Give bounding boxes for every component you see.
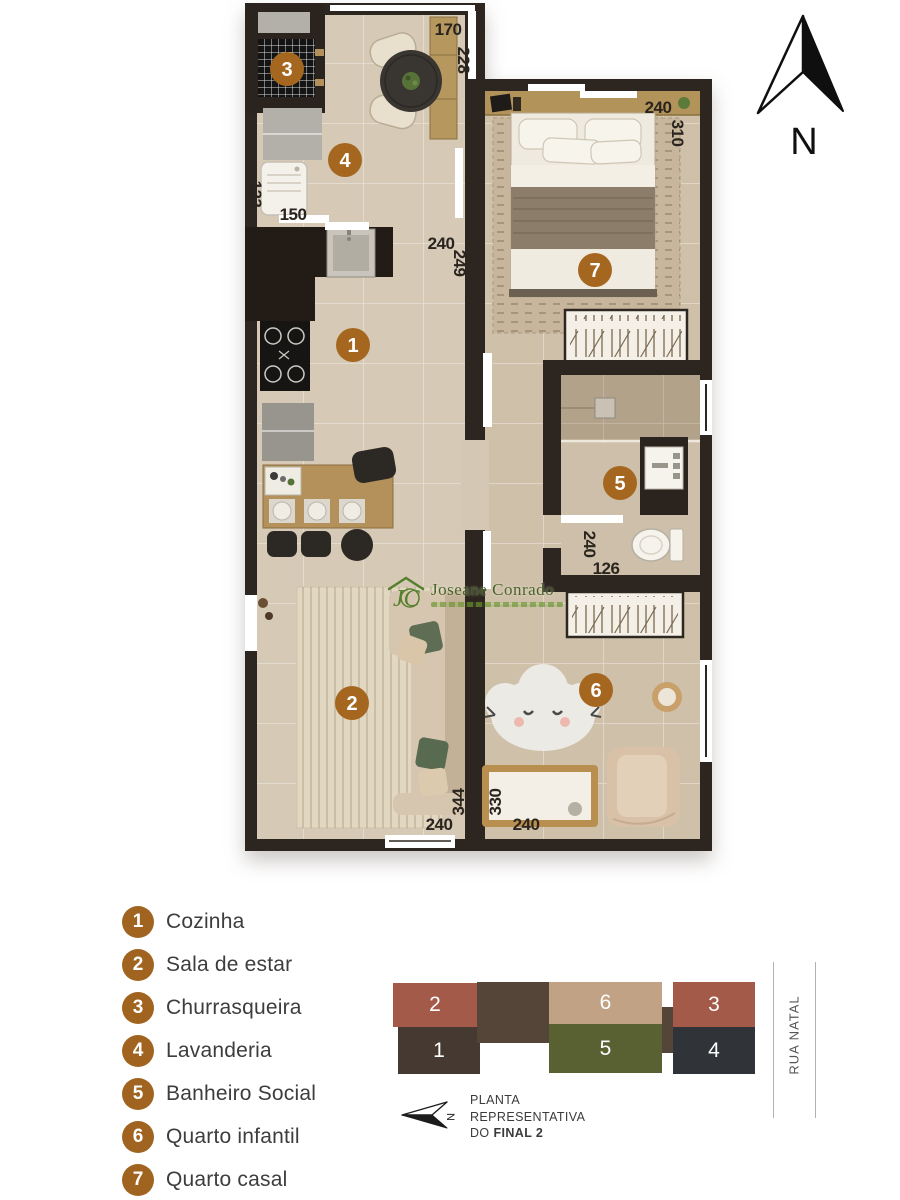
dim-laundry-width: 150 xyxy=(280,205,307,224)
kids-window xyxy=(700,660,712,762)
dim-kids-depth: 330 xyxy=(486,789,505,816)
watermark-logo-icon: JC xyxy=(386,575,426,611)
living-bottom-window xyxy=(385,835,455,848)
legend-item-quarto-casal: 7 Quarto casal xyxy=(122,1164,316,1196)
legend-item-lavanderia: 4 Lavanderia xyxy=(122,1035,316,1067)
shelf-books xyxy=(490,94,512,113)
badge-number: 1 xyxy=(347,335,358,357)
north-arrow: N xyxy=(748,4,858,164)
shelf-plant xyxy=(678,97,690,109)
keyplan-connector xyxy=(662,1007,673,1053)
north-arrow-left-half xyxy=(758,16,803,113)
legend-badge: 3 xyxy=(122,992,154,1024)
legend-item-sala: 2 Sala de estar xyxy=(122,949,316,981)
caption-line-2: REPRESENTATIVA xyxy=(470,1109,585,1126)
legend-item-banheiro: 5 Banheiro Social xyxy=(122,1078,316,1110)
room-badge-4: 4 xyxy=(328,143,362,177)
dim-laundry-depth: 123 xyxy=(246,181,265,208)
keyplan-unit-5: 5 xyxy=(549,1024,662,1073)
dim-living-depth: 344 xyxy=(449,788,468,816)
dim-kitchen-depth: 249 xyxy=(450,250,469,277)
shower-drain xyxy=(595,398,615,418)
side-plant-2 xyxy=(265,612,273,620)
room-badge-6: 6 xyxy=(579,673,613,707)
kids-stool xyxy=(652,682,682,712)
keyplan-north-arrow: N xyxy=(396,1098,460,1134)
bath-bottom-wall xyxy=(543,575,712,592)
bath-left-wall xyxy=(543,375,561,515)
table-plant xyxy=(402,72,420,90)
keyplan-unit-2: 2 xyxy=(393,983,477,1027)
hall-door-top xyxy=(483,353,492,427)
watermark-tagline xyxy=(431,602,563,607)
footboard xyxy=(509,289,657,297)
unit-number: 3 xyxy=(708,993,720,1017)
caption-line-1: PLANTA xyxy=(470,1092,585,1109)
keyplan-north-letter: N xyxy=(444,1113,456,1121)
caption-final-2: FINAL 2 xyxy=(493,1126,543,1140)
green-cushion-bottom xyxy=(415,737,450,772)
unit-number: 4 xyxy=(708,1039,720,1063)
kitchen-counter-side xyxy=(245,277,315,321)
shower xyxy=(561,375,700,441)
apartment-floor-plan: 170 228 240 310 123 150 240 249 240 126 … xyxy=(243,3,713,853)
watermark-name: Joseane Conrado xyxy=(431,580,563,600)
legend-label: Churrasqueira xyxy=(166,996,302,1020)
hallway-opening xyxy=(461,440,489,530)
unit-number: 5 xyxy=(600,1037,612,1061)
vanity xyxy=(640,437,688,515)
legend-badge: 4 xyxy=(122,1035,154,1067)
badge-number: 7 xyxy=(589,260,600,282)
legend-badge: 7 xyxy=(122,1164,154,1196)
badge-number: 3 xyxy=(281,59,292,81)
watermark: JC Joseane Conrado xyxy=(386,575,563,611)
legend-badge: 2 xyxy=(122,949,154,981)
legend-item-cozinha: 1 Cozinha xyxy=(122,906,316,938)
legend-label: Sala de estar xyxy=(166,953,292,977)
armchair xyxy=(607,747,680,827)
dim-bath-depth: 240 xyxy=(580,531,599,558)
building-key-plan: 2 1 6 5 3 4 N PLANTA REPRESENTATIVA DO F… xyxy=(390,960,835,1160)
balcony-edge xyxy=(330,5,475,11)
toilet xyxy=(632,529,683,561)
dim-casal-depth: 310 xyxy=(668,120,687,147)
dim-kids-width: 240 xyxy=(513,815,540,834)
street-line-right xyxy=(815,962,816,1118)
street-line-left xyxy=(773,962,774,1118)
dining-table xyxy=(380,50,442,112)
fridge xyxy=(262,403,314,461)
unit-number: 2 xyxy=(429,993,441,1017)
north-letter: N xyxy=(790,121,817,163)
keyplan-caption: PLANTA REPRESENTATIVA DO FINAL 2 xyxy=(470,1092,585,1142)
floorplan-sheet: N xyxy=(0,0,900,1200)
room-badge-2: 2 xyxy=(335,686,369,720)
legend-label: Cozinha xyxy=(166,910,244,934)
badge-number: 5 xyxy=(614,473,625,495)
legend-label: Quarto infantil xyxy=(166,1125,300,1149)
room-badge-3: 3 xyxy=(270,52,304,86)
unit-number: 6 xyxy=(600,991,612,1015)
closet-infantil xyxy=(567,592,683,637)
legend-badge: 1 xyxy=(122,906,154,938)
stove xyxy=(260,321,310,391)
counter-box xyxy=(258,12,310,33)
room-legend: 1 Cozinha 2 Sala de estar 3 Churrasqueir… xyxy=(122,906,316,1200)
keyplan-unit-4: 4 xyxy=(673,1027,755,1074)
dim-bath-width: 126 xyxy=(593,559,620,578)
street-name: RUA NATAL xyxy=(787,995,802,1074)
bath-door xyxy=(561,515,623,523)
legend-badge: 5 xyxy=(122,1078,154,1110)
living-left-door xyxy=(245,595,257,651)
caption-do: DO xyxy=(470,1126,490,1140)
badge-number: 6 xyxy=(590,680,601,702)
keyplan-unit-6: 6 xyxy=(549,982,662,1024)
svg-text:JC: JC xyxy=(393,586,421,611)
wardrobe-casal xyxy=(565,310,687,362)
dim-dining-depth: 228 xyxy=(454,47,473,74)
badge-number: 4 xyxy=(339,150,351,172)
legend-item-quarto-infantil: 6 Quarto infantil xyxy=(122,1121,316,1153)
keyplan-unit-3: 3 xyxy=(673,982,755,1027)
place-settings xyxy=(269,499,365,523)
dim-living-width: 240 xyxy=(426,815,453,834)
bath-top-wall xyxy=(543,360,712,375)
legend-label: Banheiro Social xyxy=(166,1082,316,1106)
room-badge-1: 1 xyxy=(336,328,370,362)
kitchen-sink xyxy=(327,225,375,277)
keyplan-stairwell xyxy=(477,982,549,1043)
badge-number: 2 xyxy=(346,693,357,715)
legend-item-churrasqueira: 3 Churrasqueira xyxy=(122,992,316,1024)
north-arrow-right-half xyxy=(803,16,843,111)
caption-line-3: DO FINAL 2 xyxy=(470,1125,585,1142)
bath-left-stub xyxy=(543,548,561,578)
legend-badge: 6 xyxy=(122,1121,154,1153)
room-badge-5: 5 xyxy=(603,466,637,500)
room-badge-7: 7 xyxy=(578,253,612,287)
legend-label: Quarto casal xyxy=(166,1168,287,1192)
side-plant xyxy=(258,598,268,608)
dim-dining-width: 170 xyxy=(435,20,462,39)
door-dining-bedroom xyxy=(455,148,463,218)
keyplan-unit-1: 1 xyxy=(398,1027,480,1074)
bath-window xyxy=(700,380,712,435)
crib-toy xyxy=(568,802,582,816)
blanket xyxy=(511,187,655,249)
dim-casal-width: 240 xyxy=(645,98,672,117)
unit-number: 1 xyxy=(433,1039,445,1063)
legend-label: Lavanderia xyxy=(166,1039,272,1063)
